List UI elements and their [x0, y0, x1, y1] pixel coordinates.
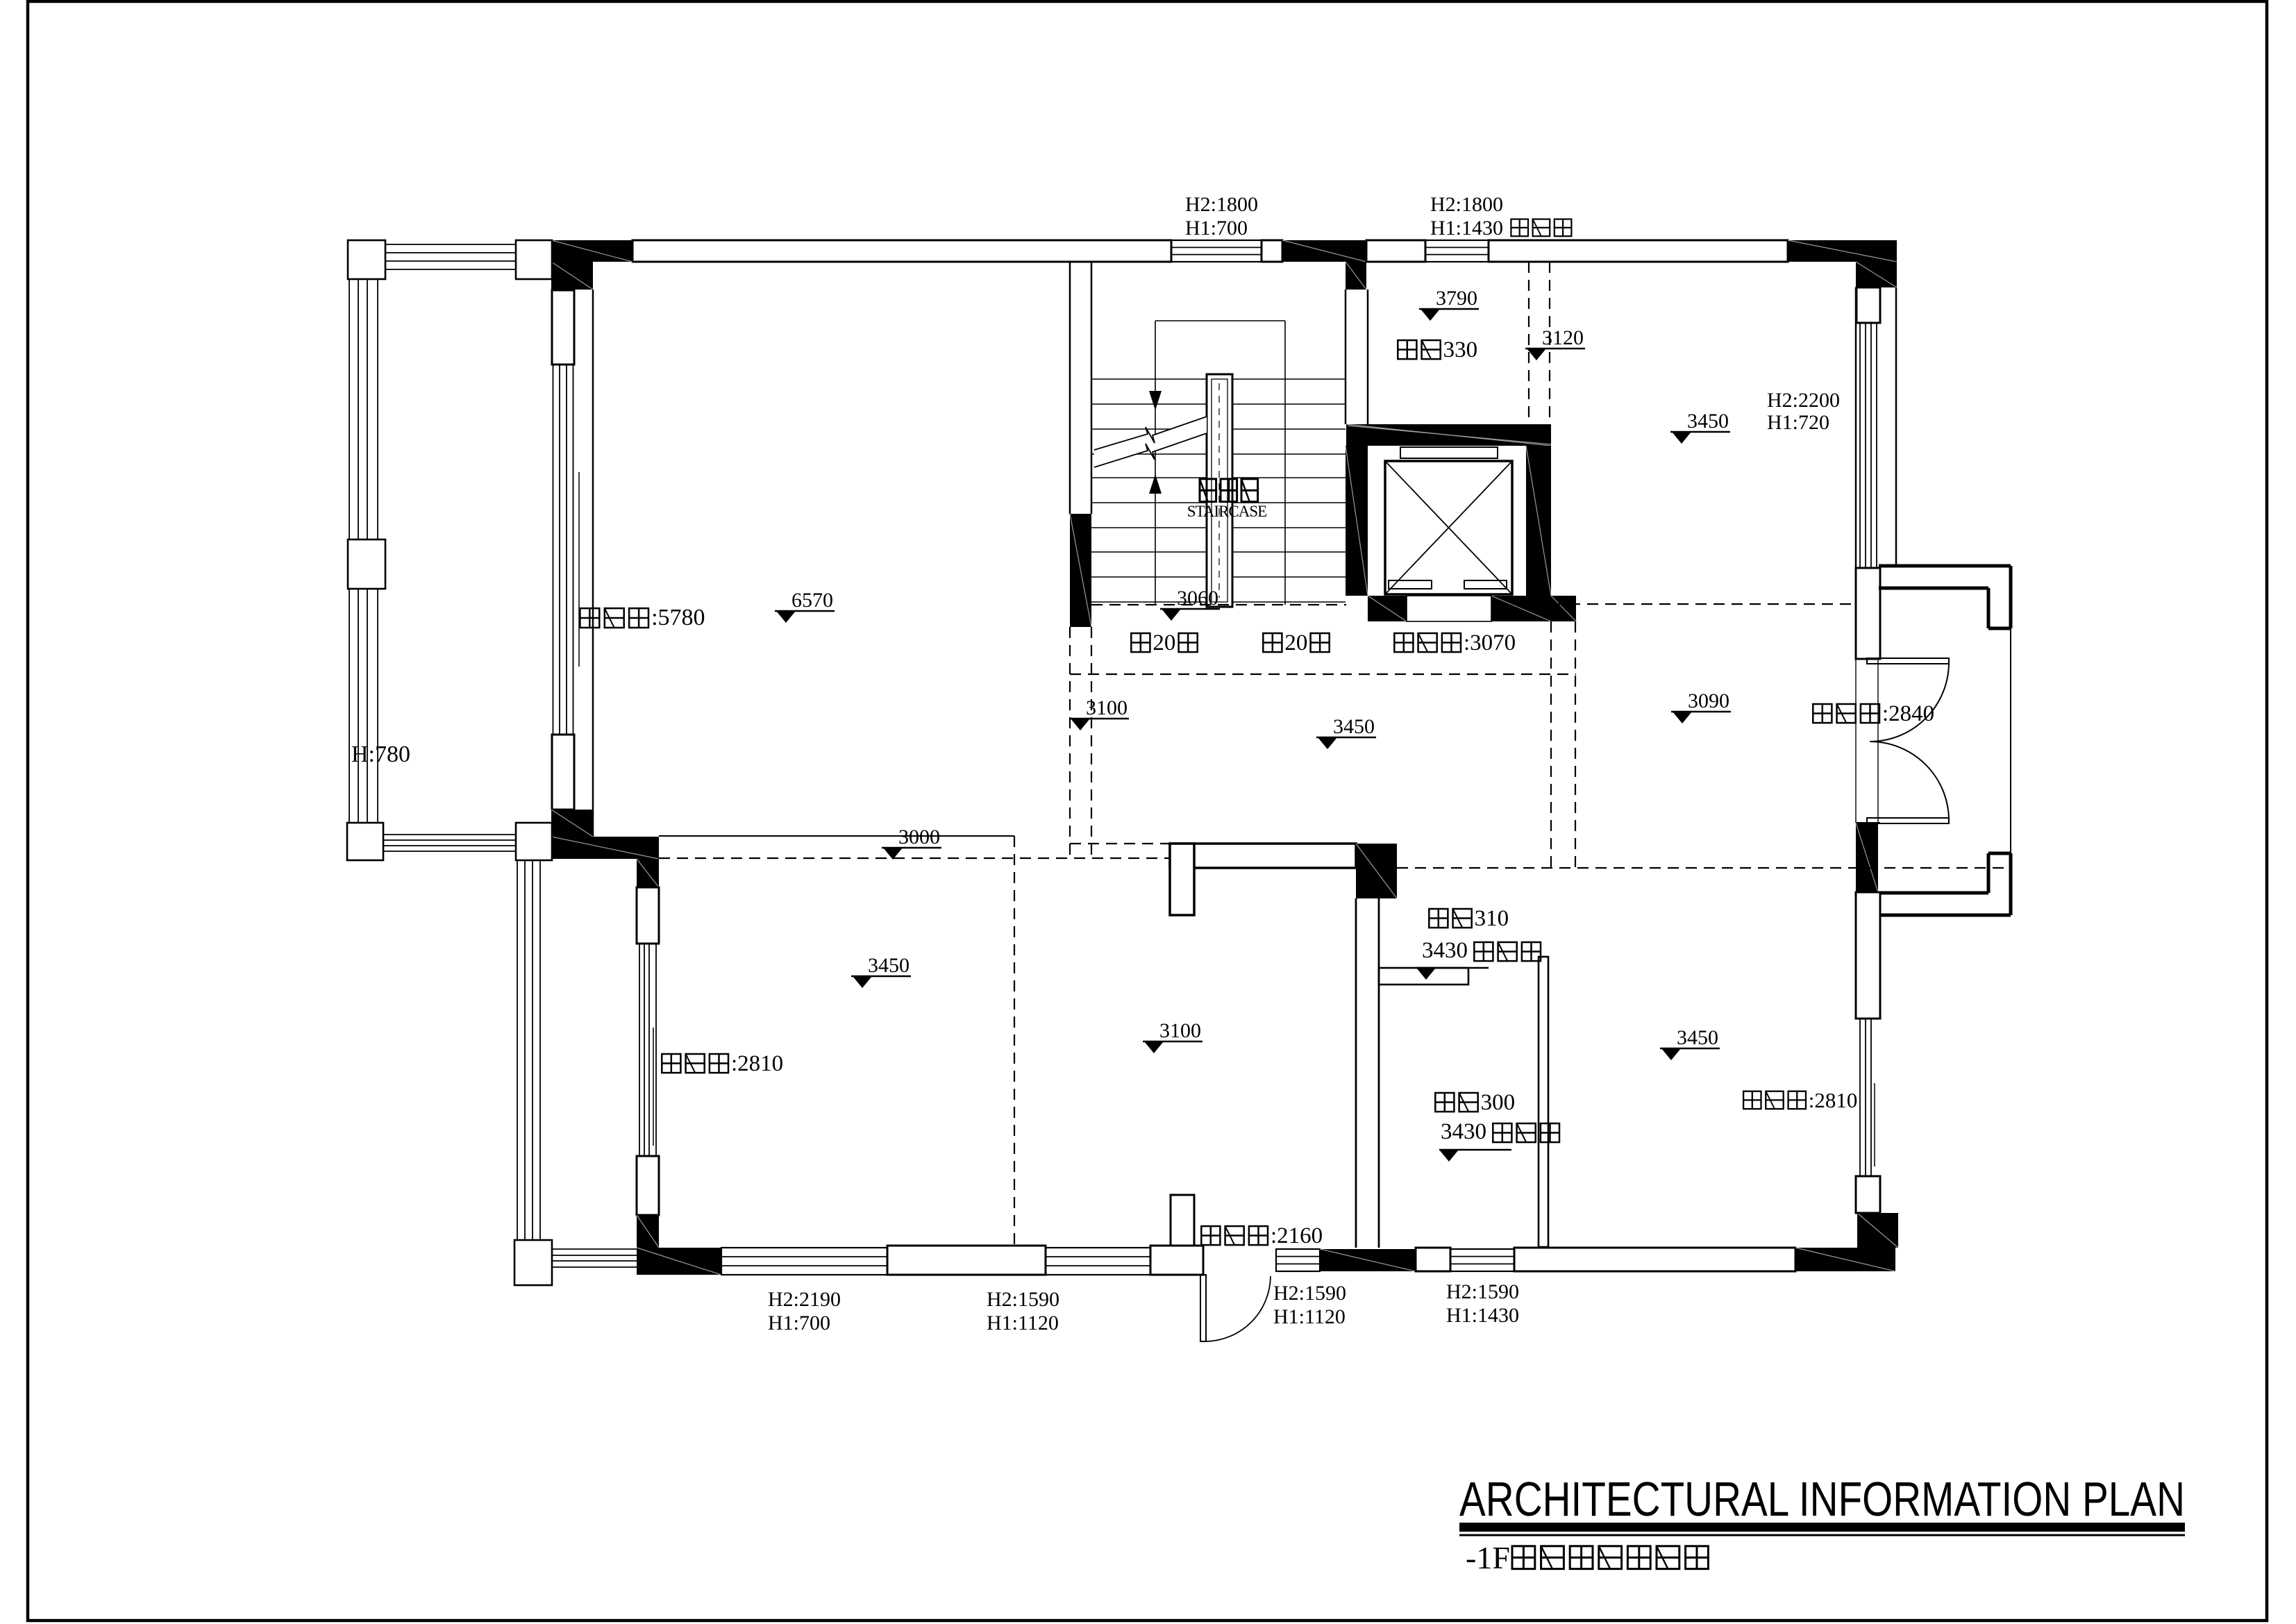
- svg-text:300: 300: [1481, 1090, 1516, 1115]
- svg-text:H1:720: H1:720: [1767, 411, 1829, 434]
- svg-text:ARCHITECTURAL INFORMATION PLAN: ARCHITECTURAL INFORMATION PLAN: [1459, 1472, 2185, 1526]
- svg-text:20: 20: [1153, 630, 1175, 655]
- svg-text:H1:700: H1:700: [768, 1312, 830, 1334]
- svg-text:H1:1430: H1:1430: [1430, 217, 1503, 240]
- svg-text:H2:1590: H2:1590: [987, 1288, 1059, 1311]
- svg-text::2160: :2160: [1271, 1223, 1323, 1248]
- svg-text:3100: 3100: [1159, 1019, 1201, 1042]
- svg-text:3430: 3430: [1422, 938, 1468, 963]
- svg-text:H1:1430: H1:1430: [1446, 1304, 1519, 1327]
- svg-text:3100: 3100: [1086, 696, 1128, 719]
- svg-text:3450: 3450: [868, 954, 910, 977]
- svg-text::2810: :2810: [1809, 1088, 1858, 1112]
- svg-text:H2:2190: H2:2190: [768, 1288, 841, 1311]
- svg-text::3070: :3070: [1464, 630, 1516, 655]
- svg-text:3060: 3060: [1177, 587, 1218, 610]
- svg-text:H2:1590: H2:1590: [1273, 1282, 1346, 1305]
- svg-text:H1:700: H1:700: [1185, 217, 1248, 240]
- svg-text:H1:1120: H1:1120: [1273, 1305, 1346, 1328]
- svg-text:3430: 3430: [1441, 1119, 1486, 1144]
- svg-text::5780: :5780: [651, 605, 705, 630]
- svg-text:H:780: H:780: [351, 742, 410, 767]
- svg-text:6570: 6570: [791, 589, 833, 612]
- svg-text:3450: 3450: [1333, 715, 1375, 738]
- svg-text:H2:2200: H2:2200: [1767, 389, 1840, 412]
- svg-text:-1F: -1F: [1466, 1540, 1510, 1575]
- svg-text::2810: :2810: [731, 1051, 783, 1076]
- svg-text:20: 20: [1284, 630, 1307, 655]
- svg-text:3790: 3790: [1436, 287, 1477, 310]
- svg-text:H1:1120: H1:1120: [987, 1312, 1059, 1334]
- svg-text:H2:1590: H2:1590: [1446, 1280, 1519, 1303]
- svg-text:3120: 3120: [1542, 326, 1584, 349]
- svg-text::2840: :2840: [1882, 701, 1934, 726]
- svg-text:STAIRCASE: STAIRCASE: [1187, 503, 1266, 520]
- svg-text:310: 310: [1475, 906, 1509, 931]
- svg-text:3090: 3090: [1688, 689, 1729, 712]
- svg-text:330: 330: [1443, 337, 1478, 362]
- svg-text:3000: 3000: [898, 826, 940, 848]
- svg-text:3450: 3450: [1677, 1026, 1718, 1049]
- svg-text:3450: 3450: [1687, 410, 1729, 433]
- svg-text:H2:1800: H2:1800: [1185, 193, 1258, 216]
- svg-text:H2:1800: H2:1800: [1430, 193, 1503, 216]
